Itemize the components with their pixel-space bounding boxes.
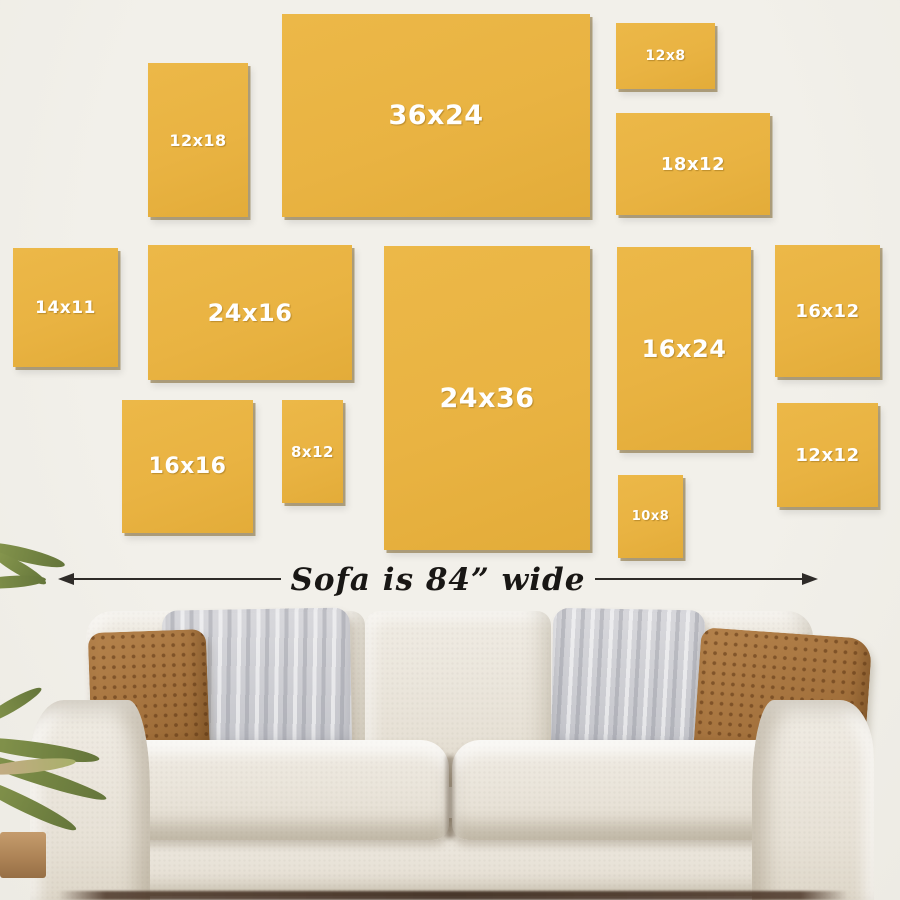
arrow-left-head-icon xyxy=(58,573,74,585)
plant-pot xyxy=(0,832,46,878)
frame-14x11: 14x11 xyxy=(13,248,118,367)
frame-size-label: 36x24 xyxy=(388,100,483,131)
frame-size-label: 24x16 xyxy=(208,299,293,327)
sofa-arm-left xyxy=(30,700,150,900)
frame-12x8: 12x8 xyxy=(616,23,715,89)
sofa-seat-gap xyxy=(446,756,454,838)
arrow-line-right xyxy=(595,578,802,580)
sofa-width-arrow: Sofa is 84” wide xyxy=(58,560,818,598)
frame-size-label: 18x12 xyxy=(661,154,725,175)
frame-36x24: 36x24 xyxy=(282,14,590,217)
frame-16x12: 16x12 xyxy=(775,245,880,377)
sofa-arm-right xyxy=(752,700,874,900)
arrow-line-left xyxy=(74,578,281,580)
frame-24x36: 24x36 xyxy=(384,246,590,550)
frame-size-label: 16x16 xyxy=(149,454,227,479)
wall-art-size-guide: 12x1836x2412x818x1214x1124x1624x3616x241… xyxy=(0,0,900,900)
plant-leaf xyxy=(0,574,46,591)
frame-size-label: 16x24 xyxy=(642,335,727,363)
frame-24x16: 24x16 xyxy=(148,245,352,380)
frame-size-label: 8x12 xyxy=(291,443,334,461)
frame-size-label: 12x12 xyxy=(795,445,859,466)
arrow-right-head-icon xyxy=(802,573,818,585)
frame-18x12: 18x12 xyxy=(616,113,770,215)
pillow-gray-right xyxy=(551,608,706,761)
floor-shadow xyxy=(58,891,848,900)
frame-size-label: 16x12 xyxy=(795,301,859,322)
frame-16x24: 16x24 xyxy=(617,247,751,450)
frame-size-label: 10x8 xyxy=(632,509,670,524)
frame-size-label: 12x8 xyxy=(645,48,685,64)
frame-10x8: 10x8 xyxy=(618,475,683,558)
frame-size-label: 24x36 xyxy=(439,383,534,414)
sofa-width-label: Sofa is 84” wide xyxy=(281,562,596,598)
frame-16x16: 16x16 xyxy=(122,400,253,533)
frame-12x12: 12x12 xyxy=(777,403,878,507)
frame-8x12: 8x12 xyxy=(282,400,343,503)
frame-12x18: 12x18 xyxy=(148,63,248,217)
frame-size-label: 14x11 xyxy=(35,298,96,318)
frame-size-label: 12x18 xyxy=(169,131,226,150)
